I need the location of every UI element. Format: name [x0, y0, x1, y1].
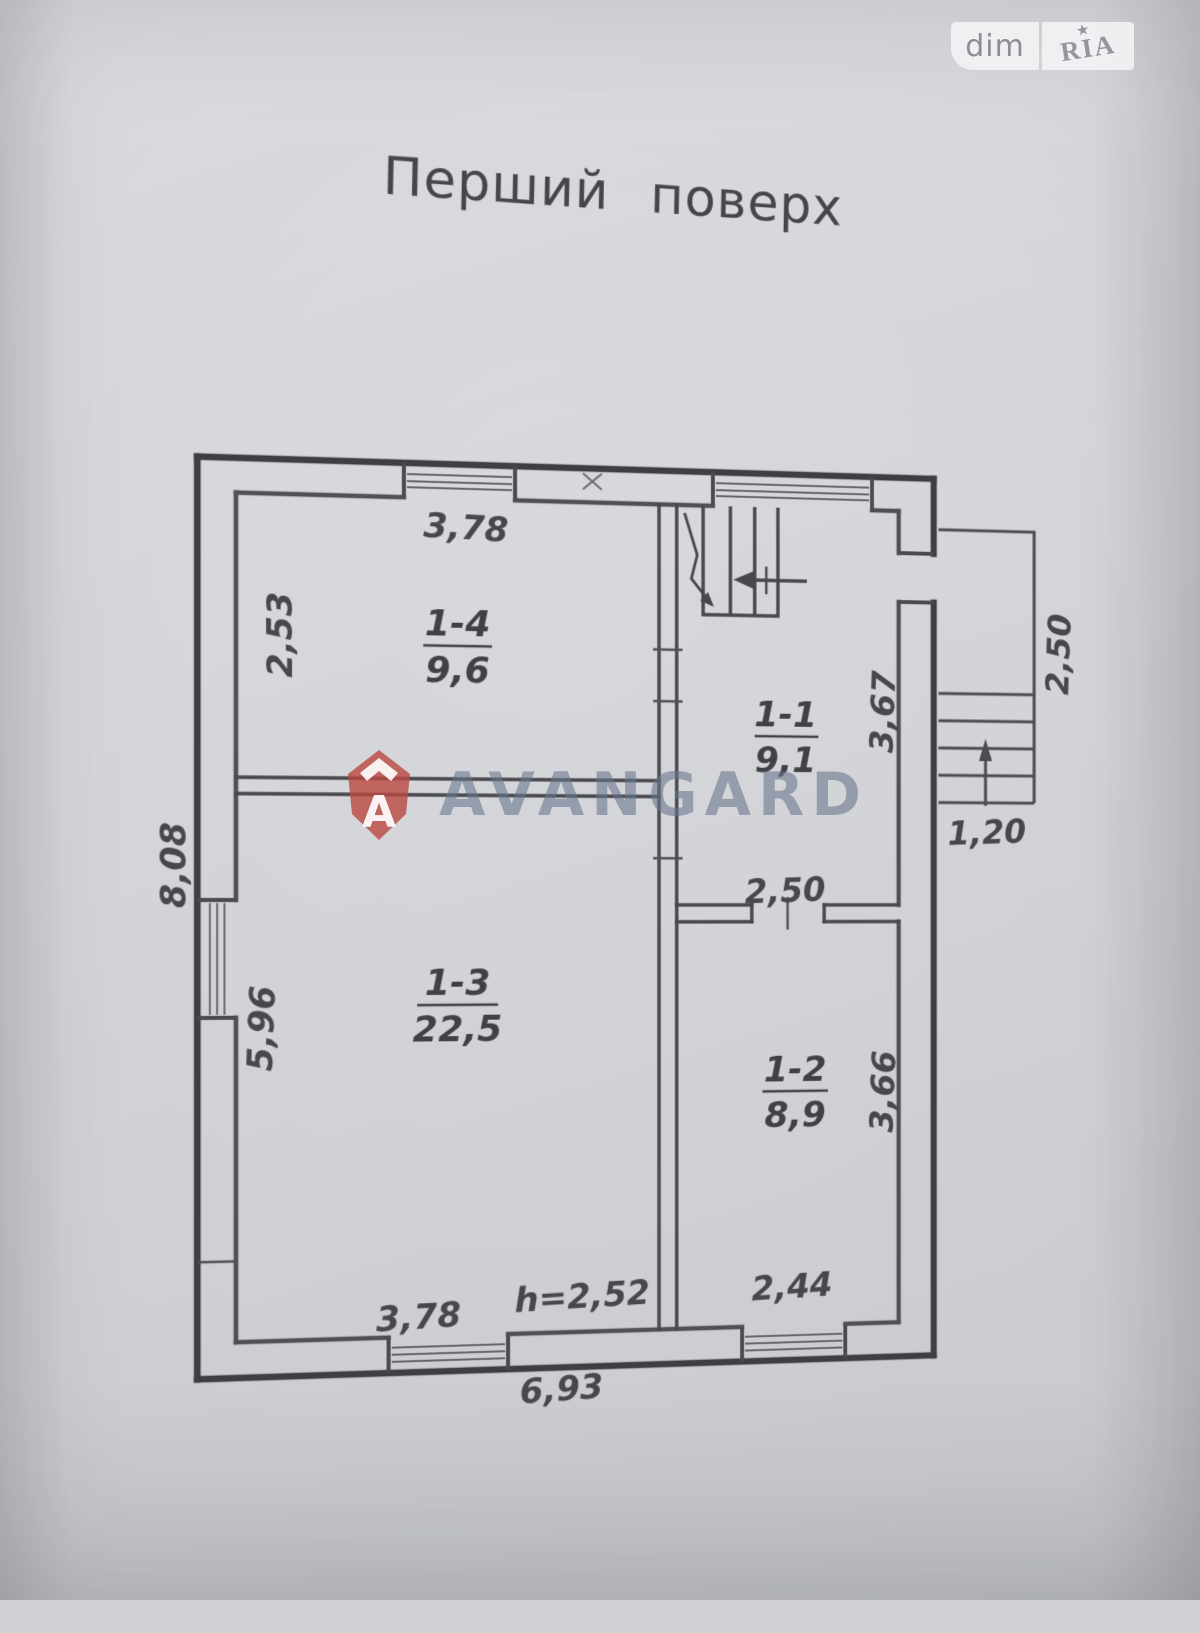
- dim-room14-width: 3,78: [423, 506, 509, 551]
- wall-x-mark: [583, 473, 602, 490]
- window-bottom-room13: [392, 1344, 505, 1362]
- window-glazing: [210, 468, 869, 1367]
- dim-bottom-total: 6,93: [519, 1367, 604, 1412]
- badge-ria-label: RIA: [1058, 28, 1118, 67]
- room-label-1-2: 1-2 8,9: [762, 1048, 828, 1136]
- stair-direction-arrow-icon: [733, 571, 753, 589]
- dim-room12-depth: 3,66: [864, 1050, 904, 1133]
- window-bottom-room12: [745, 1334, 842, 1351]
- dim-room13-width: 3,78: [375, 1295, 462, 1340]
- dim-room14-depth: 2,53: [260, 591, 301, 677]
- room-area: 9,1: [755, 739, 817, 781]
- room-area: 22,5: [413, 1007, 503, 1050]
- wall-joint-ticks: [197, 641, 787, 1262]
- room-id: 1-4: [425, 602, 491, 646]
- dim-room13-depth: 5,96: [240, 985, 284, 1072]
- dim-room11-depth: 3,67: [864, 669, 904, 754]
- room-id: 1-2: [764, 1048, 827, 1090]
- dim-porch-width: 1,20: [947, 813, 1027, 854]
- room-label-1-1: 1-1 9,1: [754, 693, 818, 781]
- site-badge: dim ★ RIA: [951, 22, 1134, 70]
- inner-wall-lines: [236, 493, 899, 1343]
- badge-dim-label: dim: [951, 22, 1039, 70]
- room-id: 1-1: [754, 693, 817, 735]
- stair-break-line: [685, 513, 712, 605]
- badge-ria-cell: ★ RIA: [1042, 22, 1134, 70]
- interior-stairs: [685, 505, 807, 617]
- stair-box: [703, 506, 778, 617]
- dim-left-side-total: 8,08: [154, 822, 195, 908]
- dim-room11-12-opening: 2,50: [744, 871, 826, 913]
- room-label-1-3: 1-3 22,5: [413, 961, 503, 1051]
- room-area: 9,6: [425, 648, 489, 692]
- room-label-1-4: 1-4 9,6: [423, 601, 492, 691]
- dim-porch-depth: 2,50: [1040, 613, 1079, 696]
- window-top-room14: [407, 474, 512, 490]
- room-area: 8,9: [765, 1093, 826, 1136]
- room-id: 1-3: [425, 961, 491, 1004]
- window-left-room13: [210, 903, 225, 1015]
- dim-ceiling-height: h=2,52: [514, 1273, 651, 1321]
- floorplan-drawing: 1-4 9,6 1-1 9,1 1-3 22,5 1-2 8,9 3,78 2,…: [0, 0, 1171, 1629]
- floorplan-photo: Перший поверх: [0, 0, 1171, 1629]
- stair-treads: [730, 506, 754, 615]
- entrance-porch: [938, 530, 1034, 806]
- dim-room12-window: 2,44: [751, 1265, 833, 1309]
- window-top-stairwell: [716, 483, 869, 500]
- interior-walls: [236, 493, 899, 1343]
